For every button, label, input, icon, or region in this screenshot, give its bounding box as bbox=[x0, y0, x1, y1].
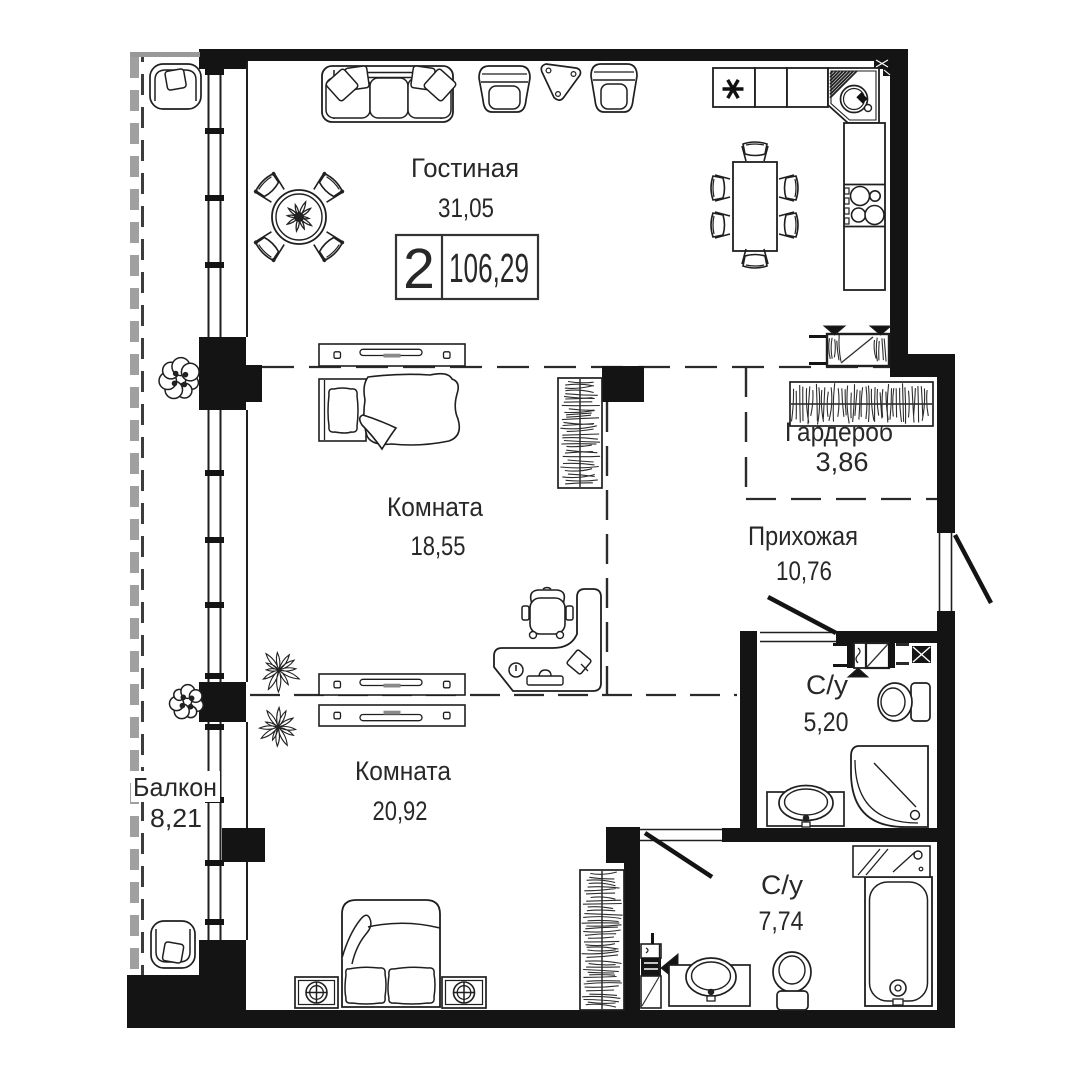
svg-text:Гостиная: Гостиная bbox=[411, 153, 519, 183]
svg-text:10,76: 10,76 bbox=[776, 556, 832, 586]
svg-text:С/у: С/у bbox=[806, 670, 849, 700]
svg-text:С/у: С/у bbox=[761, 870, 804, 900]
svg-text:106,29: 106,29 bbox=[449, 245, 529, 291]
svg-text:8,21: 8,21 bbox=[150, 803, 202, 833]
svg-text:Прихожая: Прихожая bbox=[748, 521, 858, 551]
svg-text:7,74: 7,74 bbox=[759, 906, 804, 936]
svg-text:5,20: 5,20 bbox=[804, 707, 849, 737]
svg-text:3,86: 3,86 bbox=[816, 447, 869, 477]
svg-text:20,92: 20,92 bbox=[373, 796, 428, 826]
svg-text:Комната: Комната bbox=[355, 756, 452, 786]
svg-text:31,05: 31,05 bbox=[438, 193, 494, 223]
svg-text:18,55: 18,55 bbox=[411, 531, 466, 561]
svg-text:Балкон: Балкон bbox=[133, 772, 217, 802]
svg-text:Комната: Комната bbox=[387, 492, 484, 522]
svg-text:2: 2 bbox=[403, 237, 435, 301]
